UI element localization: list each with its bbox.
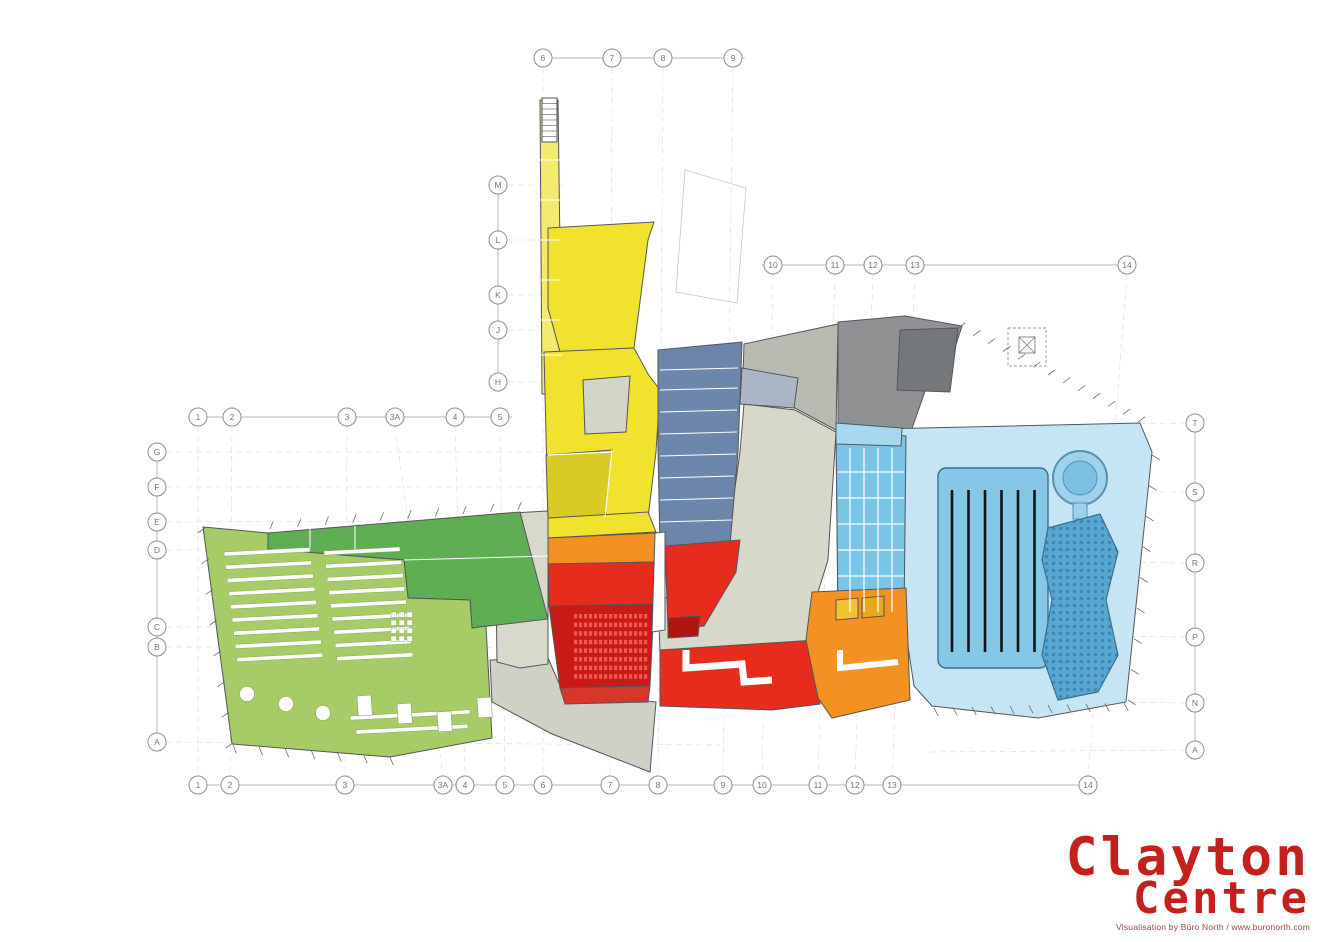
theatre-seat — [624, 631, 627, 636]
zone-music-upper — [548, 222, 654, 352]
theatre-seat — [629, 657, 632, 662]
facade-hatch-tick — [1123, 409, 1130, 414]
theatre-seat — [644, 614, 647, 619]
grid-label: D — [154, 545, 160, 555]
grid-label: 14 — [1122, 260, 1132, 270]
facade-hatch-tick — [312, 751, 315, 759]
zone-auditorium-front — [560, 686, 650, 704]
theatre-seat — [619, 674, 622, 679]
theatre-seat — [639, 674, 642, 679]
facade-hatch-tick — [380, 512, 383, 520]
facade-hatch-tick — [1108, 401, 1115, 406]
theatre-seat — [609, 631, 612, 636]
leisure-pool — [1042, 514, 1118, 700]
grid-label: 3A — [390, 412, 401, 422]
lap-pool — [938, 468, 1048, 668]
theatre-seat — [604, 623, 607, 628]
theatre-seat — [589, 623, 592, 628]
facade-hatch-tick — [934, 708, 938, 716]
grid-label: 10 — [757, 780, 767, 790]
zone-kitchen-olive-room — [546, 450, 612, 518]
grid-label: F — [154, 482, 159, 492]
theatre-seat — [594, 657, 597, 662]
theatre-seat — [599, 614, 602, 619]
theatre-seat — [629, 623, 632, 628]
table-cluster-unit — [399, 612, 405, 618]
grid-label: 7 — [610, 53, 615, 63]
theatre-seat — [624, 648, 627, 653]
theatre-seat — [599, 631, 602, 636]
facade-hatch-tick — [518, 502, 521, 510]
grid-label: 10 — [768, 260, 778, 270]
facade-hatch-tick — [1063, 378, 1070, 383]
theatre-seat — [574, 648, 577, 653]
round-table — [240, 687, 255, 702]
theatre-seat — [624, 674, 627, 679]
theatre-seat — [579, 666, 582, 671]
grid-label: 11 — [814, 780, 823, 790]
theatre-seat — [619, 648, 622, 653]
theatre-seat — [599, 623, 602, 628]
theatre-seat — [574, 631, 577, 636]
theatre-seat — [609, 657, 612, 662]
theatre-seat — [614, 640, 617, 645]
facade-hatch-tick — [364, 755, 367, 763]
theatre-seat — [589, 648, 592, 653]
theatre-seat — [624, 666, 627, 671]
theatre-seat — [594, 631, 597, 636]
theatre-seat — [629, 674, 632, 679]
theatre-seat — [574, 657, 577, 662]
theatre-seat — [584, 623, 587, 628]
theatre-seat — [594, 623, 597, 628]
spa-pool-inner — [1063, 461, 1097, 495]
facade-hatch-tick — [1124, 703, 1128, 711]
grid-label: 7 — [608, 780, 613, 790]
theatre-seat — [639, 657, 642, 662]
facade-hatch-tick — [390, 757, 393, 765]
theatre-seat — [574, 666, 577, 671]
grid-label: 13 — [887, 780, 897, 790]
theatre-seat — [589, 614, 592, 619]
round-table — [279, 697, 294, 712]
theatre-seat — [594, 640, 597, 645]
theatre-seat — [609, 648, 612, 653]
theatre-seat — [614, 631, 617, 636]
theatre-seat — [634, 614, 637, 619]
grid-guide-line — [930, 750, 1186, 752]
grid-label: A — [154, 737, 160, 747]
theatre-seat — [599, 674, 602, 679]
theatre-seat — [644, 623, 647, 628]
grid-label: P — [1192, 632, 1198, 642]
study-table — [357, 695, 372, 716]
spa-steps — [1073, 503, 1087, 519]
floor-plan-svg: 678910111213141233A451233A45678910111213… — [0, 0, 1333, 942]
theatre-seat — [594, 674, 597, 679]
theatre-seat — [614, 666, 617, 671]
facade-hatch-tick — [338, 753, 341, 761]
theatre-seat — [639, 648, 642, 653]
study-table — [397, 703, 412, 724]
theatre-seat — [639, 614, 642, 619]
facade-hatch-tick — [1143, 547, 1151, 552]
facade-hatch-tick — [353, 514, 356, 522]
theatre-seat — [599, 666, 602, 671]
theatre-seat — [639, 631, 642, 636]
grid-label: G — [154, 447, 161, 457]
facade-hatch-tick — [1152, 455, 1160, 460]
theatre-seat — [604, 640, 607, 645]
theatre-seat — [594, 614, 597, 619]
theatre-seat — [604, 631, 607, 636]
zone-cafe-room2 — [862, 596, 884, 618]
theatre-seat — [579, 614, 582, 619]
grid-label: 8 — [656, 780, 661, 790]
theatre-seat — [604, 666, 607, 671]
grid-label: S — [1192, 487, 1198, 497]
grid-label: B — [154, 642, 160, 652]
facade-hatch-tick — [1131, 669, 1139, 674]
theatre-seat — [594, 666, 597, 671]
facade-hatch-tick — [270, 521, 273, 529]
theatre-seat — [599, 657, 602, 662]
theatre-seat — [634, 674, 637, 679]
theatre-seat — [594, 648, 597, 653]
theatre-seat — [609, 666, 612, 671]
theatre-seat — [599, 640, 602, 645]
theatre-seat — [574, 623, 577, 628]
facade-hatch-tick — [285, 749, 288, 757]
facade-hatch-tick — [988, 338, 995, 343]
void-roof-outline — [676, 170, 746, 303]
grid-label: C — [154, 622, 160, 632]
zone-red-room-small — [668, 616, 700, 638]
theatre-seat — [604, 657, 607, 662]
theatre-seat — [599, 648, 602, 653]
facade-hatch-tick — [1138, 417, 1145, 422]
theatre-seat — [589, 640, 592, 645]
theatre-seat — [589, 657, 592, 662]
grid-label: H — [495, 377, 501, 387]
grid-label: K — [495, 290, 501, 300]
theatre-seat — [589, 666, 592, 671]
facade-hatch-tick — [226, 743, 233, 748]
table-cluster-unit — [407, 628, 413, 634]
grid-label: 3A — [438, 780, 449, 790]
facade-hatch-tick — [1003, 346, 1010, 351]
theatre-seat — [619, 657, 622, 662]
facade-hatch-tick — [1149, 486, 1157, 491]
theatre-seat — [624, 614, 627, 619]
grid-label: 4 — [463, 780, 468, 790]
theatre-seat — [629, 648, 632, 653]
grid-label: 1 — [196, 780, 201, 790]
table-cluster-unit — [407, 636, 413, 642]
facade-hatch-tick — [1146, 516, 1154, 521]
grid-label: 6 — [541, 53, 546, 63]
theatre-seat — [584, 674, 587, 679]
theatre-seat — [644, 657, 647, 662]
zone-plant-room — [897, 328, 958, 392]
facade-hatch-tick — [325, 516, 328, 524]
grid-label: 8 — [661, 53, 666, 63]
zone-cafe-room1 — [836, 598, 858, 620]
facade-hatch-tick — [259, 747, 262, 755]
theatre-seat — [604, 614, 607, 619]
grid-label: R — [1192, 558, 1198, 568]
theatre-seat — [614, 674, 617, 679]
grid-label: M — [494, 180, 501, 190]
theatre-seat — [579, 623, 582, 628]
study-table — [437, 711, 452, 732]
table-cluster-unit — [407, 620, 413, 626]
grid-label: 4 — [453, 412, 458, 422]
facade-hatch-tick — [408, 510, 411, 518]
theatre-seat — [634, 631, 637, 636]
table-cluster-unit — [399, 636, 405, 642]
theatre-seat — [639, 623, 642, 628]
grid-label: 12 — [868, 260, 878, 270]
facade-hatch-tick — [1134, 639, 1142, 644]
grid-label: 5 — [503, 780, 508, 790]
table-cluster-unit — [399, 620, 405, 626]
theatre-seat — [644, 631, 647, 636]
study-table — [477, 697, 492, 718]
zone-kitchen-beige-room — [583, 376, 630, 434]
facade-hatch-tick — [1137, 608, 1145, 613]
clayton-centre-logo: Clayton Centre Visualisation by Büro Nor… — [1066, 836, 1310, 932]
theatre-seat — [609, 640, 612, 645]
grid-label: J — [496, 325, 500, 335]
theatre-seat — [579, 657, 582, 662]
theatre-seat — [574, 674, 577, 679]
theatre-seat — [634, 648, 637, 653]
theatre-seat — [629, 614, 632, 619]
theatre-seat — [614, 657, 617, 662]
theatre-seat — [644, 674, 647, 679]
facade-hatch-tick — [233, 745, 236, 753]
table-cluster-unit — [407, 612, 413, 618]
theatre-seat — [639, 640, 642, 645]
theatre-seat — [609, 674, 612, 679]
theatre-seat — [584, 657, 587, 662]
facade-hatch-tick — [1140, 578, 1148, 583]
grid-label: 3 — [343, 780, 348, 790]
facade-hatch-tick — [1048, 370, 1055, 375]
theatre-seat — [634, 666, 637, 671]
grid-label: 11 — [831, 260, 840, 270]
theatre-seat — [624, 623, 627, 628]
grid-label: 6 — [541, 780, 546, 790]
theatre-seat — [609, 623, 612, 628]
theatre-seat — [619, 640, 622, 645]
grid-label: E — [154, 517, 160, 527]
theatre-seat — [619, 623, 622, 628]
grid-label: 9 — [731, 53, 736, 63]
theatre-seat — [629, 640, 632, 645]
theatre-seat — [619, 666, 622, 671]
grid-label: L — [496, 235, 501, 245]
grid-label: 2 — [230, 412, 235, 422]
theatre-seat — [629, 666, 632, 671]
facade-hatch-tick — [1078, 385, 1085, 390]
theatre-seat — [609, 614, 612, 619]
theatre-seat — [579, 648, 582, 653]
table-cluster-unit — [391, 612, 397, 618]
facade-hatch-tick — [490, 504, 493, 512]
theatre-seat — [584, 631, 587, 636]
theatre-seat — [634, 640, 637, 645]
grid-label: 13 — [910, 260, 920, 270]
skylight-outline — [1008, 328, 1046, 366]
theatre-seat — [584, 648, 587, 653]
theatre-seat — [584, 614, 587, 619]
theatre-seat — [634, 623, 637, 628]
theatre-seat — [619, 631, 622, 636]
grid-label: N — [1192, 698, 1198, 708]
theatre-seat — [589, 674, 592, 679]
theatre-seat — [644, 666, 647, 671]
table-cluster-unit — [399, 628, 405, 634]
grid-label: T — [1192, 418, 1197, 428]
theatre-seat — [584, 666, 587, 671]
zone-auditorium-upper — [548, 562, 655, 606]
grid-label: 5 — [498, 412, 503, 422]
table-cluster-unit — [391, 636, 397, 642]
grid-label: A — [1192, 745, 1198, 755]
grid-label: 14 — [1083, 780, 1093, 790]
grid-label: 2 — [228, 780, 233, 790]
facade-hatch-tick — [1093, 393, 1100, 398]
table-cluster-unit — [391, 628, 397, 634]
theatre-seat — [624, 640, 627, 645]
theatre-seat — [644, 640, 647, 645]
facade-hatch-tick — [298, 519, 301, 527]
theatre-seat — [644, 648, 647, 653]
theatre-seat — [584, 640, 587, 645]
theatre-seat — [619, 614, 622, 619]
zone-boh-slate — [658, 342, 742, 548]
theatre-seat — [614, 614, 617, 619]
grid-label: 9 — [721, 780, 726, 790]
theatre-seat — [574, 640, 577, 645]
theatre-seat — [579, 631, 582, 636]
theatre-seat — [574, 614, 577, 619]
facade-hatch-tick — [1018, 354, 1025, 359]
theatre-seat — [614, 648, 617, 653]
grid-label: 3 — [345, 412, 350, 422]
theatre-seat — [579, 640, 582, 645]
floor-plan-page: 678910111213141233A451233A45678910111213… — [0, 0, 1333, 942]
facade-hatch-tick — [973, 331, 980, 336]
grid-label: 12 — [850, 780, 860, 790]
facade-hatch-tick — [435, 508, 438, 516]
logo-caption: Visualisation by Büro North / www.burono… — [1066, 922, 1310, 932]
theatre-seat — [634, 657, 637, 662]
theatre-seat — [614, 623, 617, 628]
grid-label: 1 — [196, 412, 201, 422]
facade-hatch-tick — [463, 506, 466, 514]
theatre-seat — [579, 674, 582, 679]
table-cluster-unit — [391, 620, 397, 626]
theatre-seat — [604, 674, 607, 679]
theatre-seat — [589, 631, 592, 636]
theatre-seat — [639, 666, 642, 671]
round-table — [316, 706, 331, 721]
theatre-seat — [624, 657, 627, 662]
theatre-seat — [604, 648, 607, 653]
zone-stage — [548, 533, 656, 564]
theatre-seat — [629, 631, 632, 636]
